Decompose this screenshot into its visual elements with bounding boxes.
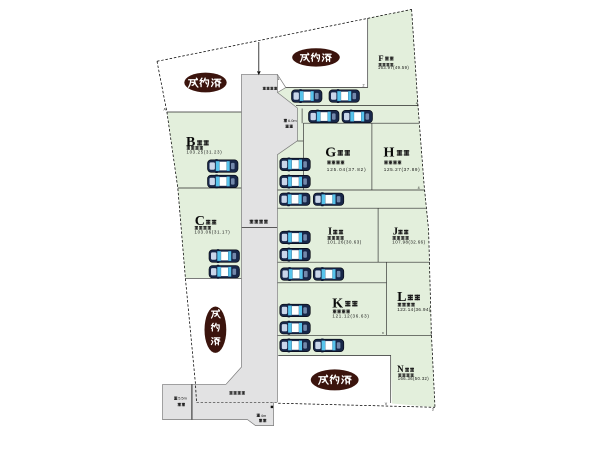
svg-text:103.06(31.17): 103.06(31.17) bbox=[195, 229, 231, 234]
svg-text:3: 3 bbox=[432, 408, 434, 412]
svg-text:F: F bbox=[378, 53, 383, 63]
svg-text:J: J bbox=[393, 227, 398, 238]
svg-text:4: 4 bbox=[418, 186, 420, 190]
svg-text:1: 1 bbox=[430, 331, 432, 335]
svg-text:G: G bbox=[325, 146, 336, 161]
svg-text:125.27(37.89): 125.27(37.89) bbox=[384, 167, 420, 172]
svg-text:1: 1 bbox=[278, 77, 280, 81]
svg-text:N: N bbox=[397, 364, 404, 374]
svg-text:4: 4 bbox=[416, 102, 418, 106]
svg-text:122.14(36.94): 122.14(36.94) bbox=[397, 307, 431, 312]
svg-text:163.97(49.59): 163.97(49.59) bbox=[378, 65, 409, 70]
svg-text:x: x bbox=[382, 331, 384, 335]
svg-text:107.98(32.66): 107.98(32.66) bbox=[392, 239, 425, 244]
svg-text:6.0m: 6.0m bbox=[288, 118, 297, 123]
svg-text:103.25(31.23): 103.25(31.23) bbox=[187, 150, 223, 155]
svg-text:101.26(30.63): 101.26(30.63) bbox=[327, 239, 362, 244]
svg-text:125.04(37.82): 125.04(37.82) bbox=[327, 167, 367, 172]
svg-text:4m: 4m bbox=[261, 413, 266, 418]
svg-text:166.36(50.32): 166.36(50.32) bbox=[398, 376, 429, 381]
svg-text:I: I bbox=[328, 227, 332, 238]
svg-text:5.5m: 5.5m bbox=[178, 396, 187, 401]
svg-text:121.12(36.63): 121.12(36.63) bbox=[332, 314, 369, 319]
svg-text:H: H bbox=[384, 146, 395, 161]
svg-text:K: K bbox=[332, 296, 343, 311]
svg-text:2: 2 bbox=[363, 83, 365, 87]
